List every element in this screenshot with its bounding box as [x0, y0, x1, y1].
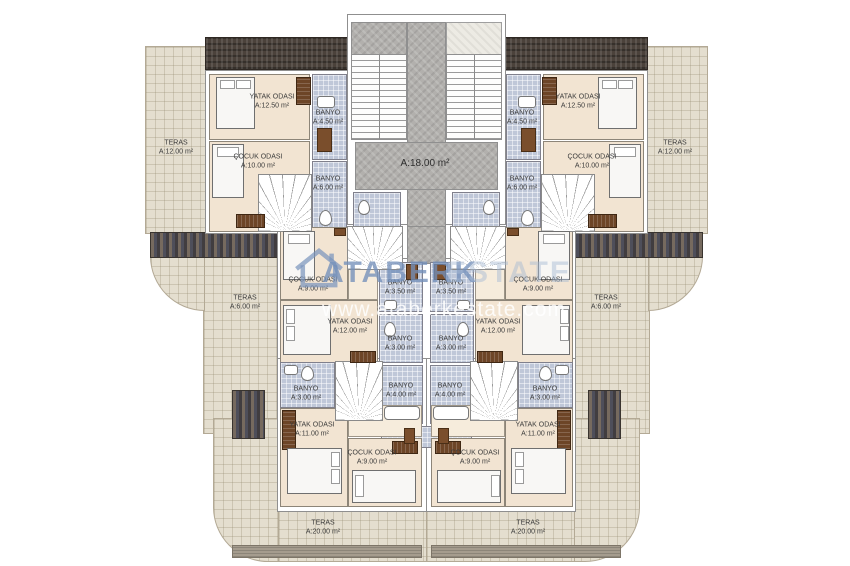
pergola-strip-mid-left	[150, 232, 290, 258]
room-area: A:10.00 m²	[567, 162, 616, 171]
room-name: BANYO	[530, 385, 560, 394]
room-name: BANYO	[507, 175, 537, 184]
label-kids-top-right: ÇOCUK ODASIA:10.00 m²	[567, 153, 616, 171]
room-area: A:12.00 m²	[658, 148, 692, 157]
door	[334, 228, 346, 236]
single-bed	[352, 470, 416, 503]
vanity	[521, 128, 536, 152]
room-area: A:4.00 m²	[386, 391, 416, 400]
room-name: TERAS	[306, 519, 340, 528]
room-name: ÇOCUK ODASI	[513, 276, 562, 285]
label-kids-bottom-left: ÇOCUK ODASIA:9.00 m²	[347, 449, 396, 467]
room-name: BANYO	[435, 382, 465, 391]
double-bed	[511, 448, 566, 494]
label-bath-4_0-left: BANYOA:4.00 m²	[386, 382, 416, 400]
wardrobe	[296, 77, 311, 105]
label-terrace-mid-right: TERASA:6.00 m²	[591, 294, 621, 312]
door	[404, 428, 415, 444]
wardrobe	[477, 351, 503, 363]
dresser	[236, 214, 265, 228]
label-bedroom-bottom-left: YATAK ODASIA:11.00 m²	[289, 421, 334, 439]
room-name: BANYO	[436, 279, 466, 288]
parapet-band-bottom-left	[232, 545, 422, 558]
room-area: A:18.00 m²	[401, 158, 450, 171]
room-area: A:20.00 m²	[511, 528, 545, 537]
room-area: A:9.00 m²	[347, 458, 396, 467]
room-area: A:4.00 m²	[435, 391, 465, 400]
room-area: A:3.00 m²	[530, 394, 560, 403]
room-area: A:3.50 m²	[385, 288, 415, 297]
room-name: TERAS	[230, 294, 260, 303]
sink	[384, 300, 397, 310]
room-name: YATAK ODASI	[249, 93, 294, 102]
room-name: YATAK ODASI	[327, 318, 372, 327]
room-area: A:4.50 m²	[507, 118, 537, 127]
room-name: BANYO	[385, 335, 415, 344]
single-bed	[538, 231, 570, 280]
room-name: BANYO	[385, 279, 415, 288]
room-name: BANYO	[313, 175, 343, 184]
dresser	[588, 214, 617, 228]
label-bath-4_0-right: BANYOA:4.00 m²	[435, 382, 465, 400]
winder-stair-mid-left	[347, 226, 403, 270]
floor-plan: TERASA:12.00 m² TERASA:12.00 m² YATAK OD…	[0, 0, 850, 566]
label-bath-b-top-left: BANYOA:6.00 m²	[313, 175, 343, 193]
sink	[284, 365, 298, 375]
terrace-mid-right-curve	[648, 256, 703, 311]
staircase-left	[351, 54, 407, 140]
pergola-strip-mid-right	[563, 232, 703, 258]
terrace-bottom-left-wing	[213, 418, 282, 562]
room-name: ÇOCUK ODASI	[450, 449, 499, 458]
label-bath-3_5-left: BANYOA:3.50 m²	[385, 279, 415, 297]
label-bedroom-top-left: YATAK ODASIA:12.50 m²	[249, 93, 294, 111]
room-area: A:9.00 m²	[450, 458, 499, 467]
toilet	[521, 210, 534, 226]
bathtub	[384, 406, 420, 420]
label-terrace-bottom-right: TERASA:20.00 m²	[511, 519, 545, 537]
label-terrace-top-right: TERASA:12.00 m²	[658, 139, 692, 157]
double-bed	[283, 305, 331, 355]
toilet	[358, 200, 370, 215]
toilet	[539, 366, 552, 381]
room-name: ÇOCUK ODASI	[288, 276, 337, 285]
door	[507, 228, 519, 236]
toilet	[301, 366, 314, 381]
roof-strip-left	[205, 37, 349, 70]
double-bed	[287, 448, 342, 494]
room-name: TERAS	[511, 519, 545, 528]
room-name: BANYO	[313, 109, 343, 118]
label-bath-b-top-right: BANYOA:6.00 m²	[507, 175, 537, 193]
vanity	[317, 128, 332, 152]
vanity	[434, 264, 446, 280]
label-bath-bottom-left: BANYOA:3.00 m²	[291, 385, 321, 403]
label-bath-a-top-left: BANYOA:4.50 m²	[313, 109, 343, 127]
label-terrace-mid-left: TERASA:6.00 m²	[230, 294, 260, 312]
room-area: A:20.00 m²	[306, 528, 340, 537]
label-terrace-bottom-left: TERASA:20.00 m²	[306, 519, 340, 537]
room-area: A:6.00 m²	[591, 303, 621, 312]
stair-landing-right	[446, 22, 502, 56]
winder-stair-top-left	[258, 174, 312, 232]
room-area: A:3.00 m²	[291, 394, 321, 403]
single-bed	[609, 144, 641, 198]
label-kids-top-left: ÇOCUK ODASIA:10.00 m²	[233, 153, 282, 171]
room-name: ÇOCUK ODASI	[567, 153, 616, 162]
room-area: A:6.00 m²	[313, 184, 343, 193]
toilet	[483, 200, 495, 215]
sink	[555, 365, 569, 375]
room-area: A:6.00 m²	[507, 184, 537, 193]
label-bath-3_5-right: BANYOA:3.50 m²	[436, 279, 466, 297]
room-name: YATAK ODASI	[289, 421, 334, 430]
label-bedroom-bottom-right: YATAK ODASIA:11.00 m²	[515, 421, 560, 439]
single-bed	[283, 231, 315, 280]
room-name: TERAS	[658, 139, 692, 148]
shaft	[407, 226, 446, 264]
room-area: A:12.00 m²	[327, 327, 372, 336]
label-kids-bottom-right: ÇOCUK ODASIA:9.00 m²	[450, 449, 499, 467]
roof-strip-right	[504, 37, 648, 70]
room-name: YATAK ODASI	[475, 318, 520, 327]
room-area: A:12.00 m²	[159, 148, 193, 157]
label-bedroom-top-right: YATAK ODASIA:12.50 m²	[555, 93, 600, 111]
single-bed	[437, 470, 501, 503]
label-bedroom-mid-left: YATAK ODASIA:12.00 m²	[327, 318, 372, 336]
terrace-bottom-right-wing	[571, 418, 640, 562]
room-name: YATAK ODASI	[515, 421, 560, 430]
parapet-band-bottom-right	[431, 545, 621, 558]
toilet	[319, 210, 332, 226]
room-area: A:12.00 m²	[475, 327, 520, 336]
bathtub	[433, 406, 469, 420]
wall-patch-left	[232, 390, 265, 439]
room-name: BANYO	[386, 382, 416, 391]
room-area: A:12.50 m²	[249, 102, 294, 111]
sink	[518, 96, 536, 108]
vanity	[406, 264, 418, 280]
label-kids-mid-right: ÇOCUK ODASIA:9.00 m²	[513, 276, 562, 294]
staircase-right	[446, 54, 502, 140]
room-area: A:3.00 m²	[385, 344, 415, 353]
room-area: A:9.00 m²	[513, 285, 562, 294]
sink	[457, 300, 470, 310]
room-name: TERAS	[591, 294, 621, 303]
winder-stair-top-right	[541, 174, 595, 232]
wall-patch-right	[588, 390, 621, 439]
room-name: ÇOCUK ODASI	[233, 153, 282, 162]
room-name: YATAK ODASI	[555, 93, 600, 102]
room-area: A:10.00 m²	[233, 162, 282, 171]
room-name: BANYO	[436, 335, 466, 344]
room-name: BANYO	[507, 109, 537, 118]
room-name: BANYO	[291, 385, 321, 394]
room-area: A:3.00 m²	[436, 344, 466, 353]
winder-stair-mid-right	[450, 226, 506, 270]
label-bath-3_0-right: BANYOA:3.00 m²	[436, 335, 466, 353]
room-area: A:3.50 m²	[436, 288, 466, 297]
winder-stair-bottom-right	[470, 361, 518, 421]
room-name: ÇOCUK ODASI	[347, 449, 396, 458]
door	[438, 428, 449, 444]
label-bath-3_0-left: BANYOA:3.00 m²	[385, 335, 415, 353]
sink	[317, 96, 335, 108]
terrace-mid-left-curve	[150, 256, 205, 311]
room-area: A:9.00 m²	[288, 285, 337, 294]
double-bed	[598, 77, 637, 129]
wardrobe	[350, 351, 376, 363]
label-terrace-top-left: TERASA:12.00 m²	[159, 139, 193, 157]
room-area: A:6.00 m²	[230, 303, 260, 312]
double-bed	[522, 305, 570, 355]
label-kids-mid-left: ÇOCUK ODASIA:9.00 m²	[288, 276, 337, 294]
label-hall: A:18.00 m²	[401, 158, 450, 171]
room-name: TERAS	[159, 139, 193, 148]
room-area: A:11.00 m²	[289, 430, 334, 439]
label-bedroom-mid-right: YATAK ODASIA:12.00 m²	[475, 318, 520, 336]
stair-landing-left	[351, 22, 407, 56]
room-area: A:12.50 m²	[555, 102, 600, 111]
label-bath-bottom-right: BANYOA:3.00 m²	[530, 385, 560, 403]
single-bed	[212, 144, 244, 198]
corridor	[407, 22, 446, 234]
winder-stair-bottom-left	[335, 361, 383, 421]
room-area: A:11.00 m²	[515, 430, 560, 439]
room-area: A:4.50 m²	[313, 118, 343, 127]
label-bath-a-top-right: BANYOA:4.50 m²	[507, 109, 537, 127]
